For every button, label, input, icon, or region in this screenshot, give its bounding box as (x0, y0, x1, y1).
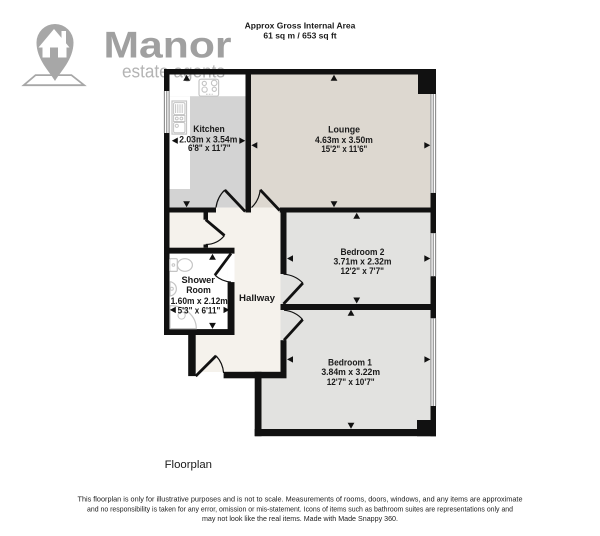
svg-text:61 sq m / 653 sq ft: 61 sq m / 653 sq ft (263, 31, 336, 41)
svg-text:Room: Room (186, 285, 211, 296)
svg-text:may not look like the real ite: may not look like the real items. Made w… (202, 514, 398, 523)
svg-text:15'2" x 11'6": 15'2" x 11'6" (321, 144, 367, 155)
svg-text:6'8" x 11'7": 6'8" x 11'7" (188, 143, 231, 154)
svg-text:Hallway: Hallway (239, 293, 276, 304)
svg-text:Approx Gross Internal Area: Approx Gross Internal Area (245, 20, 356, 30)
svg-text:5'3" x 6'11": 5'3" x 6'11" (178, 306, 221, 317)
svg-text:This floorplan is only for ill: This floorplan is only for illustrative … (78, 494, 523, 503)
svg-text:Kitchen: Kitchen (193, 124, 225, 135)
svg-text:Floorplan: Floorplan (165, 459, 212, 471)
svg-text:Manor: Manor (104, 25, 232, 66)
svg-text:Lounge: Lounge (328, 124, 360, 135)
svg-text:and no responsibility is taken: and no responsibility is taken for any e… (87, 504, 513, 513)
svg-text:12'2" x 7'7": 12'2" x 7'7" (341, 266, 385, 277)
svg-text:12'7" x 10'7": 12'7" x 10'7" (327, 377, 375, 388)
